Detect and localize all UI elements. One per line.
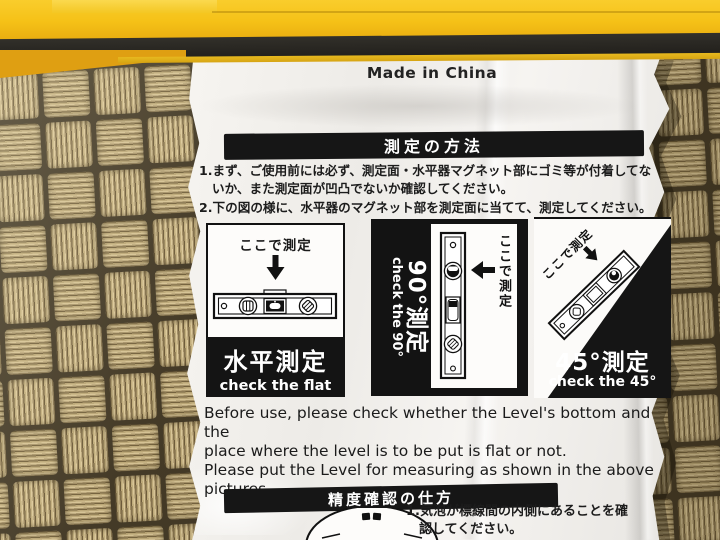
instruction-sheet: Made in China 測定の方法 1.まず、ご使用前には必ず、測定面・水平…	[0, 0, 720, 540]
method-step1-line1: 1.まず、ご使用前には必ず、測定面・水平器マグネット部にゴミ等が付着してな	[199, 162, 667, 180]
diagram-flat-panel: ここで測定	[206, 223, 345, 397]
tool-seam-line	[212, 11, 720, 13]
english-line1: Before use, please check whether the Lev…	[204, 404, 678, 442]
flat-title-jp: 水平測定	[206, 342, 345, 377]
english-line2: place where the level is to be put is fl…	[204, 442, 678, 461]
method-step1-line2: いか、また測定面が凹凸でないか確認してください。	[199, 180, 667, 198]
90-callout-label: ここで測定	[494, 234, 513, 309]
90-panel-label: 90°測定 check the 90°	[374, 222, 428, 392]
accuracy-step1-line2: 認してください。	[406, 521, 706, 539]
45-title-jp: 45°測定	[534, 343, 671, 377]
accuracy-step1-line1: 1.気泡が標線間の内側にあることを確	[406, 503, 706, 521]
made-in-china-label: Made in China	[332, 64, 532, 82]
45-title-en: check the 45°	[534, 374, 671, 390]
yellow-level-tool	[0, 0, 720, 62]
photo-scene: Made in China 測定の方法 1.まず、ご使用前には必ず、測定面・水平…	[0, 0, 720, 540]
english-line3: Please put the Level for measuring as sh…	[204, 461, 678, 480]
down-arrow-icon	[266, 255, 285, 281]
left-arrow-icon	[471, 260, 495, 280]
tool-highlight-tab	[52, 0, 217, 13]
horizontal-level-drawing	[212, 287, 338, 323]
accuracy-steps: 1.気泡が標線間の内側にあることを確 認してください。	[406, 503, 706, 539]
flat-callout-label: ここで測定	[208, 234, 343, 254]
method-header-text: 測定の方法	[384, 133, 484, 158]
90-title-en: check the 90°	[389, 222, 404, 392]
flat-panel-label: 水平測定 check the flat	[206, 337, 345, 397]
method-section-header: 測定の方法	[224, 130, 644, 160]
90-panel-window: ここで測定	[431, 224, 517, 388]
90-title-jp: 90°測定	[404, 222, 428, 392]
diagram-45-panel: ここで測定 45°測定 check the 45°	[534, 217, 671, 398]
method-steps: 1.まず、ご使用前には必ず、測定面・水平器マグネット部にゴミ等が付着してな いか…	[199, 162, 667, 217]
method-step2: 2.下の図の様に、水平器のマグネット部を測定面に当てて、測定してください。	[199, 199, 667, 217]
flat-title-en: check the flat	[206, 378, 345, 394]
vertical-level-drawing	[436, 231, 470, 381]
